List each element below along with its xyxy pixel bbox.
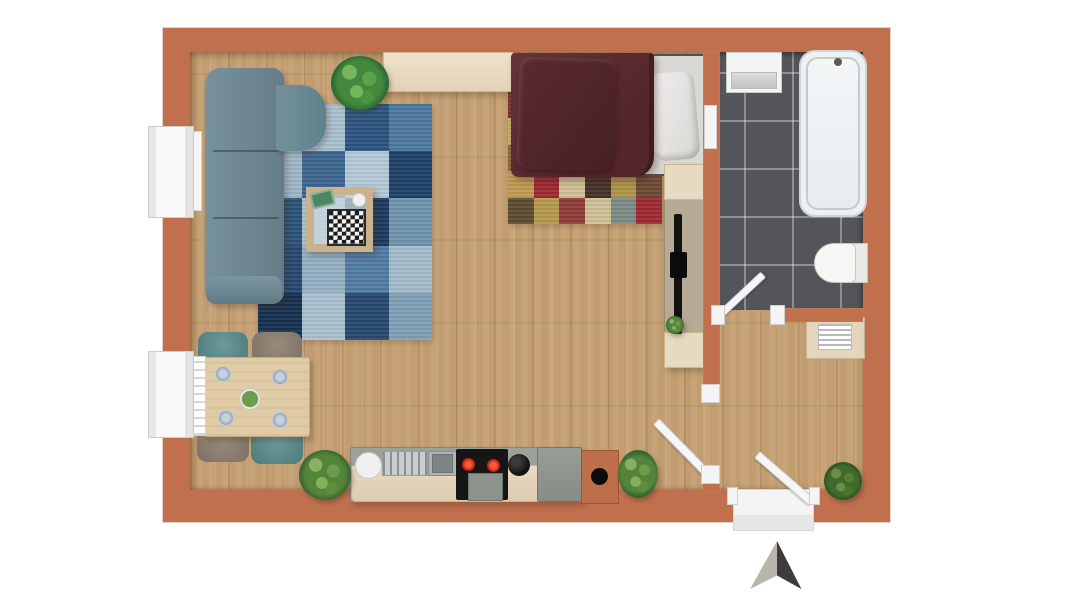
kitchen-sink-bowl xyxy=(432,454,453,473)
towel-radiator xyxy=(704,105,717,149)
oven-front xyxy=(468,473,503,501)
bathroom-doorframe-right xyxy=(770,305,785,325)
rug-patch xyxy=(389,293,433,340)
rug-patch xyxy=(559,198,585,224)
entrance-frame-left xyxy=(727,487,738,505)
window-left-bottom xyxy=(148,351,194,438)
rug-patch xyxy=(585,198,611,224)
north-arrow-icon xyxy=(777,541,803,589)
rug-patch xyxy=(636,198,662,224)
washbasin-bowl xyxy=(731,72,777,89)
table-plate xyxy=(215,366,231,382)
rug-patch xyxy=(389,104,433,151)
fridge xyxy=(537,447,582,502)
table-plate xyxy=(272,369,288,385)
entrance-frame-right xyxy=(809,487,820,505)
tv-cabinet-decor xyxy=(666,316,684,334)
plant-living xyxy=(331,56,389,110)
rug-patch xyxy=(345,246,389,293)
bathtub-faucet xyxy=(834,58,842,66)
plant-kitchen-left xyxy=(299,450,351,500)
bed-pillow-maroon xyxy=(516,56,616,171)
rug-patch xyxy=(302,293,346,340)
chess-board xyxy=(327,209,366,246)
bathtub-inner xyxy=(806,57,860,210)
sofa-cushion-seam xyxy=(213,150,279,152)
hall-doorframe-top xyxy=(701,384,720,403)
kitchen-plate xyxy=(355,452,382,479)
rug-patch xyxy=(345,104,389,151)
sofa-chaise xyxy=(276,85,326,151)
burner-on xyxy=(462,458,475,471)
north-arrow-icon xyxy=(749,541,777,589)
rug-patch xyxy=(534,198,560,224)
rug-patch xyxy=(389,151,433,198)
sofa-armrest xyxy=(206,276,282,304)
sofa-body xyxy=(205,68,284,304)
tv-mount xyxy=(670,252,687,278)
hall-doorframe-bottom xyxy=(701,465,720,484)
sink-drainboard xyxy=(382,451,428,476)
tv-lowboard-bottom-cap xyxy=(664,332,707,368)
toilet-bowl xyxy=(814,243,856,283)
table-plate xyxy=(218,410,234,426)
rug-patch xyxy=(611,198,637,224)
flue-hole xyxy=(591,468,608,485)
plant-kitchen-right xyxy=(618,450,658,498)
table-plate xyxy=(272,412,288,428)
rug-patch xyxy=(508,198,534,224)
sideboard xyxy=(383,52,513,92)
small-dish xyxy=(352,193,366,207)
rug-patch xyxy=(302,246,346,293)
table-centerpiece xyxy=(239,388,261,410)
floor-plan-canvas xyxy=(0,0,1080,608)
bathroom-doorframe-left xyxy=(711,305,725,325)
burner-on xyxy=(487,459,500,472)
tv-lowboard-top-cap xyxy=(664,164,707,200)
plant-hallway xyxy=(824,462,862,500)
rug-patch xyxy=(345,293,389,340)
bathtub xyxy=(799,50,867,217)
rug-patch xyxy=(389,198,433,245)
kettle xyxy=(508,454,530,476)
bed-pillow-white xyxy=(647,70,700,162)
rug-patch xyxy=(389,246,433,293)
window-left-top xyxy=(148,126,194,218)
sofa-cushion-seam xyxy=(213,217,279,219)
hallway-shelf-vent xyxy=(818,324,852,350)
